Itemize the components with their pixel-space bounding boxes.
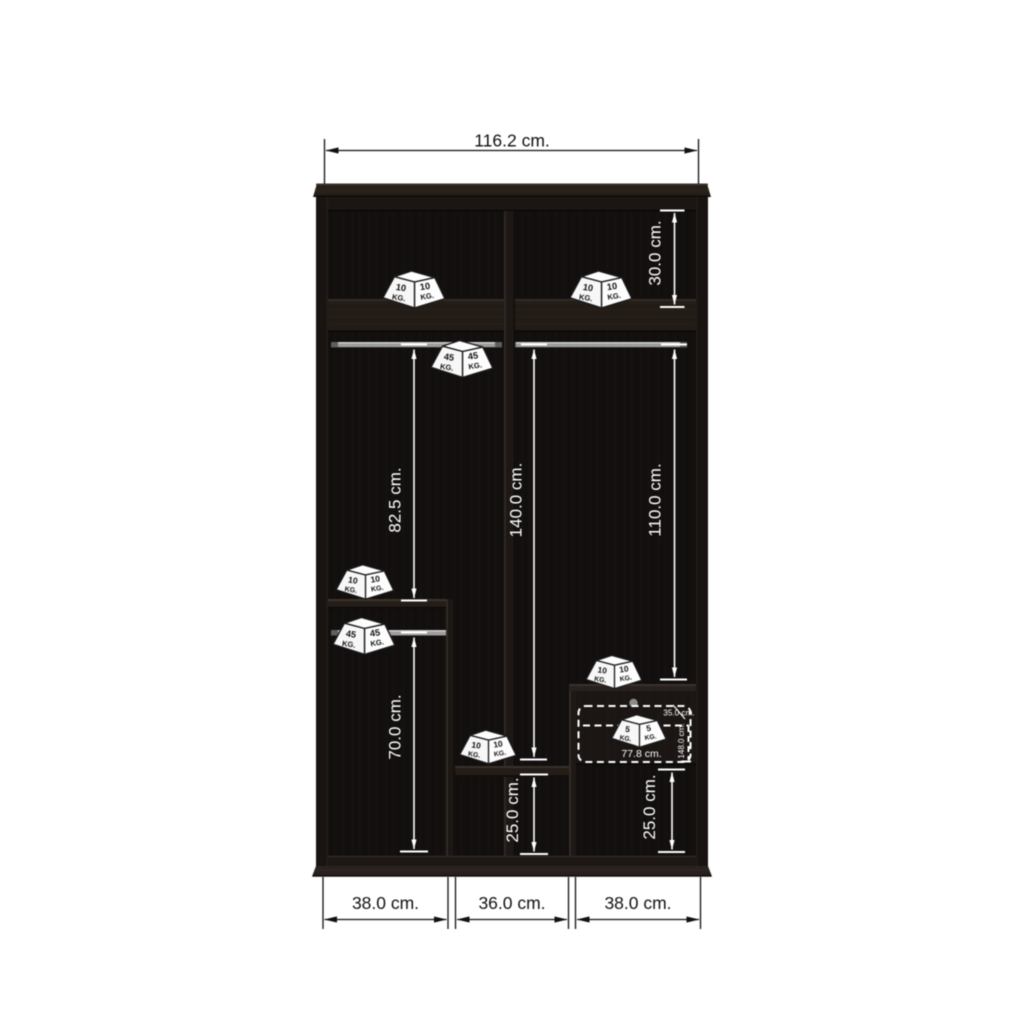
svg-text:116.2 cm.: 116.2 cm. — [474, 131, 550, 151]
svg-text:10: 10 — [419, 281, 431, 292]
svg-text:25.0 cm.: 25.0 cm. — [503, 777, 522, 842]
svg-text:10: 10 — [471, 739, 482, 750]
svg-text:10: 10 — [370, 573, 381, 584]
svg-text:148.0 cm.: 148.0 cm. — [677, 723, 686, 758]
svg-text:10: 10 — [606, 281, 618, 292]
svg-text:70.0 cm.: 70.0 cm. — [386, 694, 405, 759]
svg-text:45: 45 — [345, 628, 357, 639]
svg-text:10: 10 — [582, 282, 594, 293]
svg-text:10: 10 — [395, 282, 407, 293]
svg-text:77.8 cm.: 77.8 cm. — [621, 748, 661, 760]
svg-text:82.5 cm.: 82.5 cm. — [386, 467, 405, 532]
svg-text:38.0 cm.: 38.0 cm. — [604, 893, 671, 913]
svg-text:110.0 cm.: 110.0 cm. — [646, 463, 665, 536]
svg-text:36.0 cm.: 36.0 cm. — [478, 893, 545, 913]
svg-text:140.0 cm.: 140.0 cm. — [507, 463, 526, 538]
svg-text:45: 45 — [369, 627, 381, 638]
svg-text:38.0 cm.: 38.0 cm. — [352, 893, 419, 913]
svg-text:45: 45 — [443, 351, 455, 362]
svg-text:10: 10 — [619, 664, 630, 674]
svg-text:45: 45 — [467, 350, 479, 361]
svg-text:10: 10 — [347, 574, 358, 585]
svg-text:10: 10 — [597, 665, 608, 675]
svg-text:35.0 cm.: 35.0 cm. — [663, 709, 694, 718]
svg-text:10: 10 — [493, 738, 504, 749]
svg-text:30.0 cm.: 30.0 cm. — [646, 220, 665, 285]
svg-text:25.0 cm.: 25.0 cm. — [640, 774, 659, 839]
